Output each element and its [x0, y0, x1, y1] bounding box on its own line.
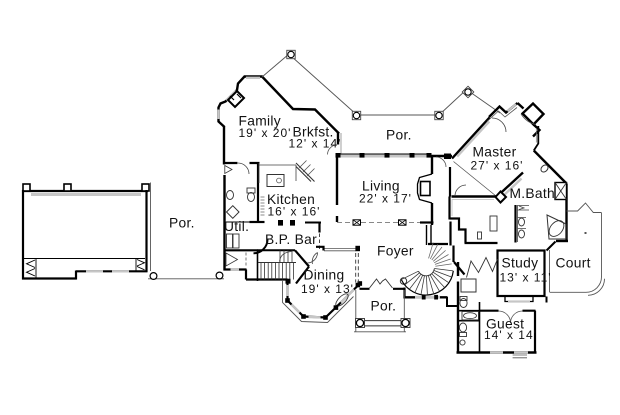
svg-text:19' x 20': 19' x 20' [239, 126, 292, 140]
svg-text:22' x 17': 22' x 17' [359, 192, 412, 206]
svg-text:14' x 14': 14' x 14' [484, 328, 537, 342]
svg-text:27' x 16': 27' x 16' [471, 159, 524, 173]
svg-text:Court: Court [556, 256, 591, 271]
svg-text:Dining: Dining [304, 268, 345, 283]
svg-text:Master: Master [473, 145, 517, 160]
svg-text:Por.: Por. [386, 128, 412, 143]
svg-text:16' x 16': 16' x 16' [268, 205, 321, 219]
svg-text:13' x 11': 13' x 11' [500, 271, 552, 285]
svg-text:Study: Study [502, 256, 539, 271]
svg-text:Por.: Por. [169, 216, 195, 231]
svg-text:Por.: Por. [371, 299, 397, 314]
svg-text:Util.: Util. [224, 219, 249, 234]
svg-text:12' x 14': 12' x 14' [289, 137, 342, 151]
svg-text:M.Bath: M.Bath [510, 186, 556, 201]
svg-text:B.P. Bar: B.P. Bar [265, 232, 317, 247]
svg-text:19' x 13': 19' x 13' [301, 282, 354, 296]
svg-text:Foyer: Foyer [377, 244, 414, 259]
